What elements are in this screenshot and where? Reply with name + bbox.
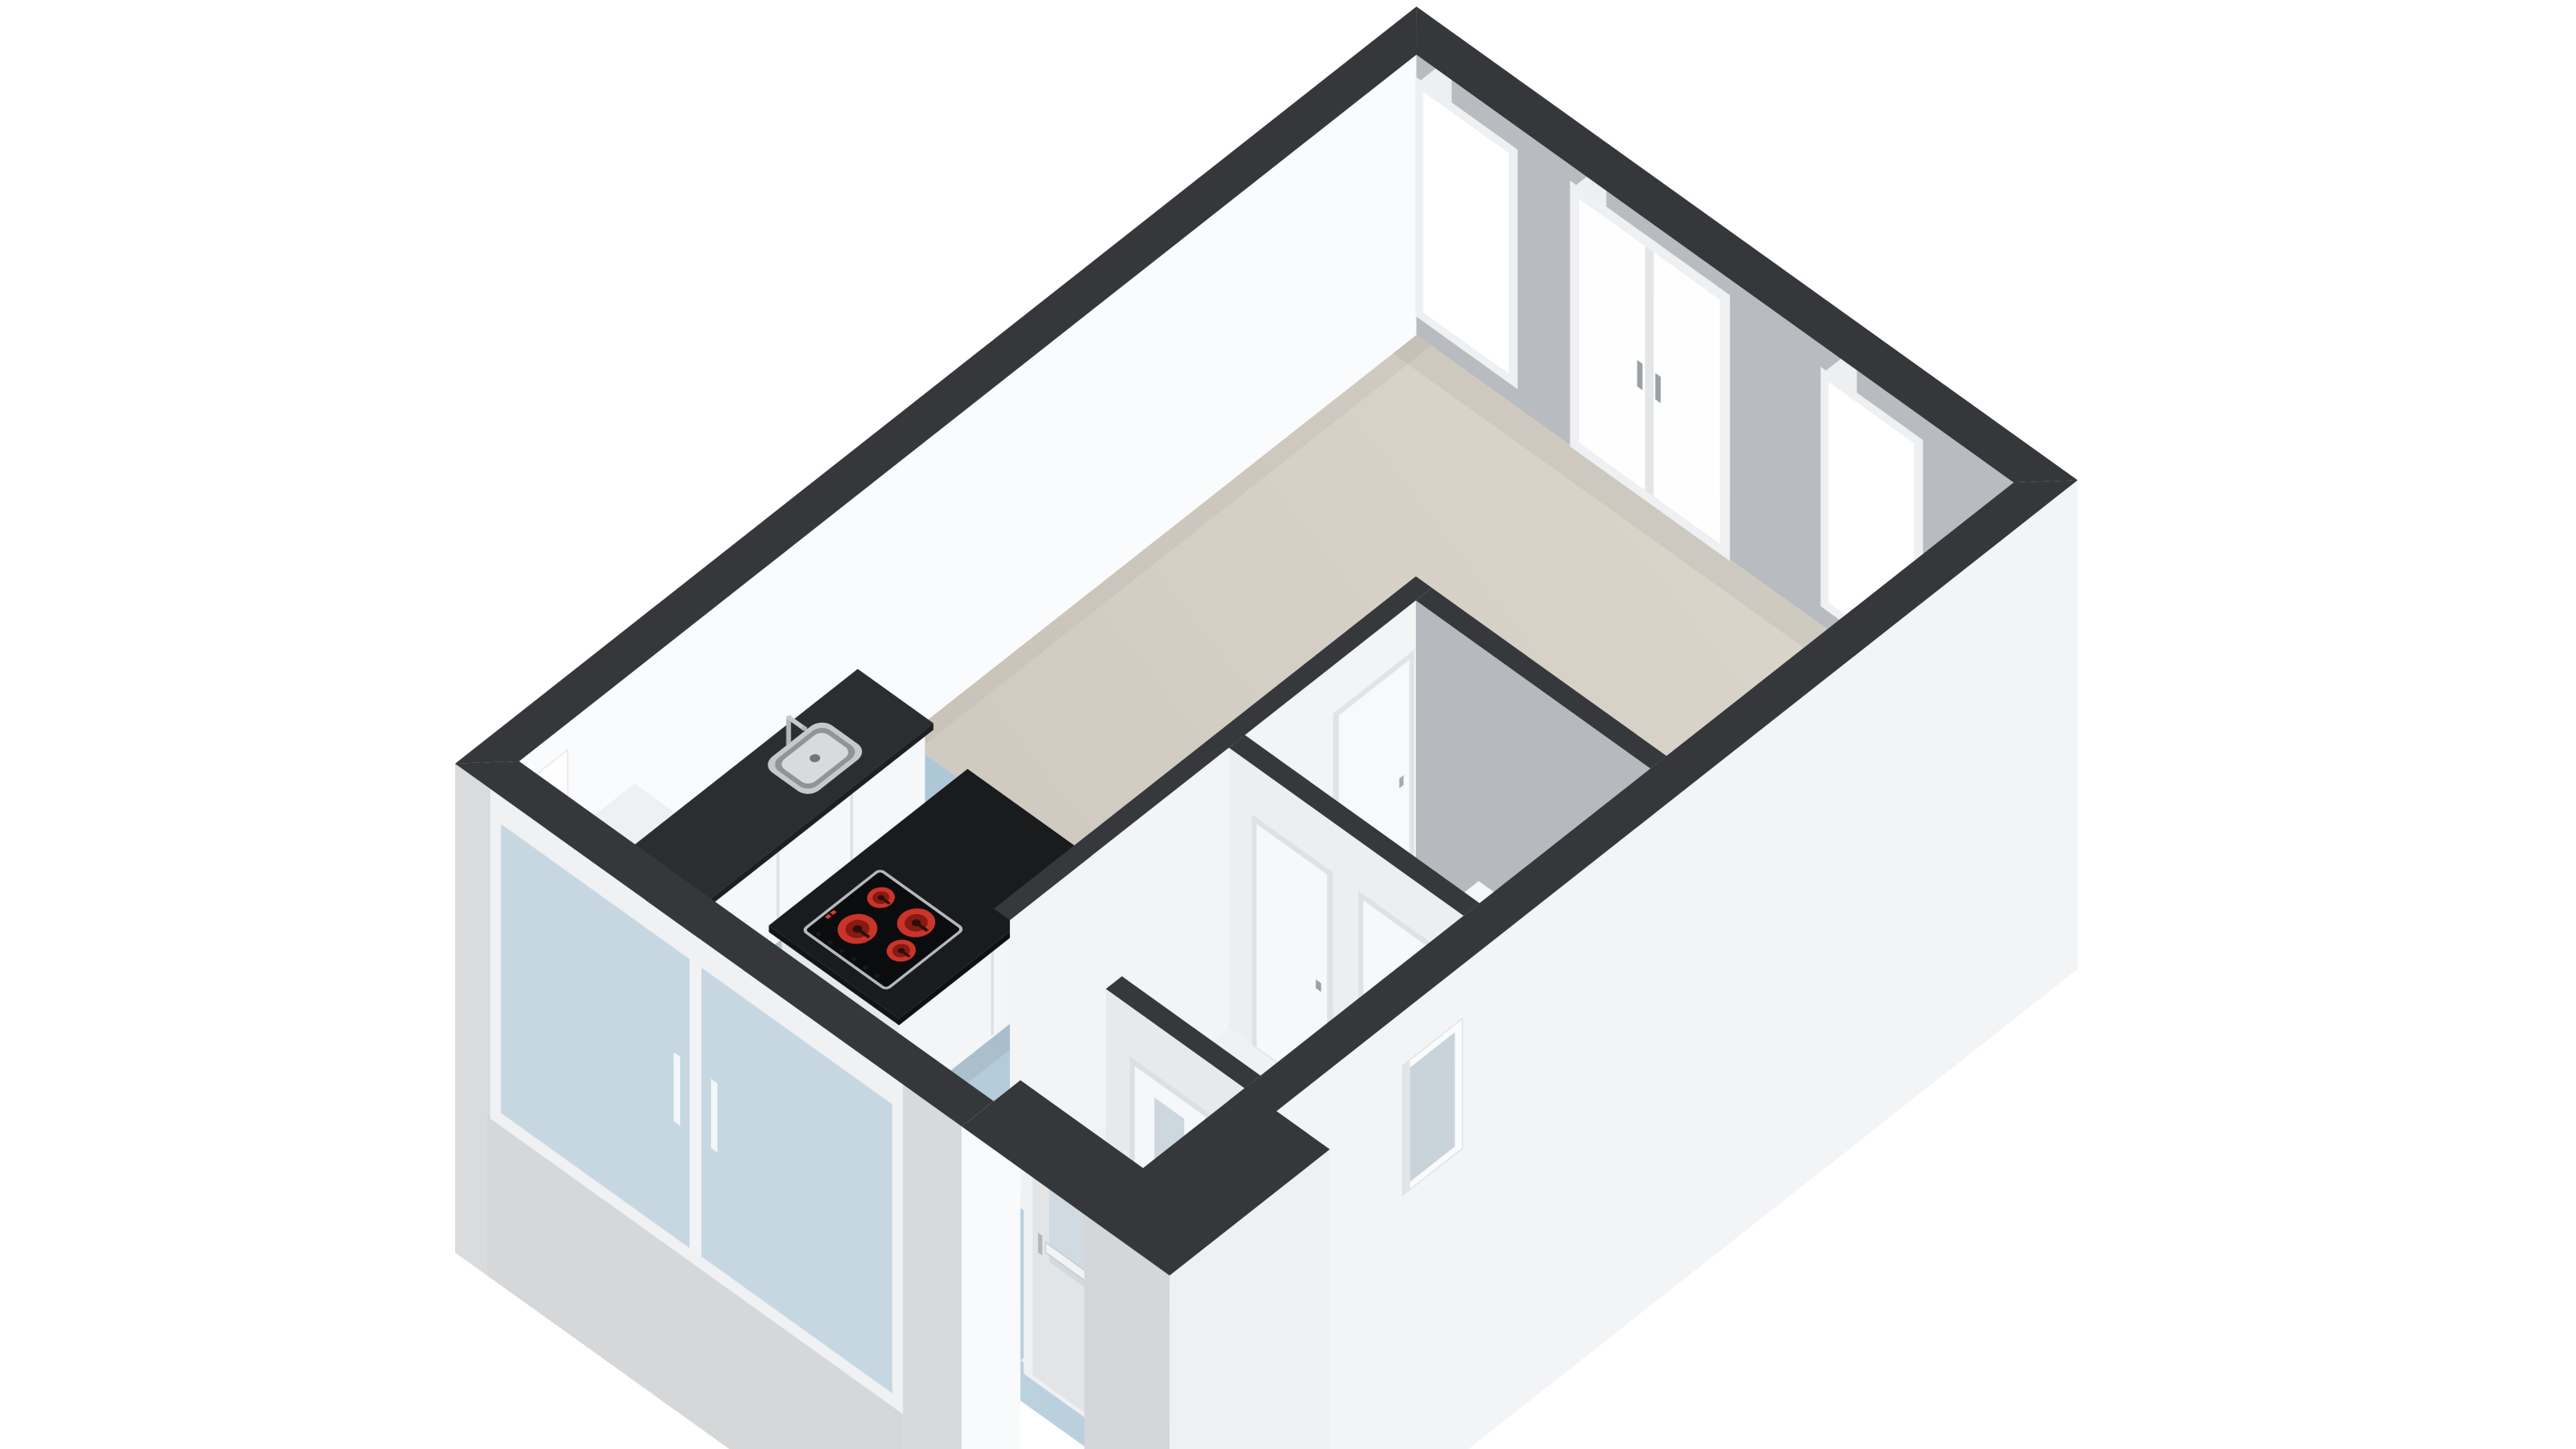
wall-bottomleft-pier xyxy=(903,1084,962,1449)
sliding-door-mullion xyxy=(690,959,702,1256)
wall-bottomleft-corner-strip xyxy=(455,764,493,1280)
floorplan-3d-render xyxy=(0,0,2576,1449)
small-window-reveal xyxy=(1402,1060,1410,1196)
frenchdoor-mullion xyxy=(1645,246,1654,496)
entry-door-lock xyxy=(1038,1233,1042,1256)
sliding-door-handle xyxy=(674,1052,681,1126)
frenchdoor-glass-left xyxy=(1579,199,1645,490)
sliding-door-handle xyxy=(711,1079,717,1153)
frenchdoor-glass-right xyxy=(1654,252,1720,543)
frenchdoor-handle xyxy=(1637,360,1643,390)
frenchdoor-handle xyxy=(1656,373,1661,403)
floorplan-scene xyxy=(0,0,2576,1449)
island-front-seam xyxy=(991,942,993,1036)
